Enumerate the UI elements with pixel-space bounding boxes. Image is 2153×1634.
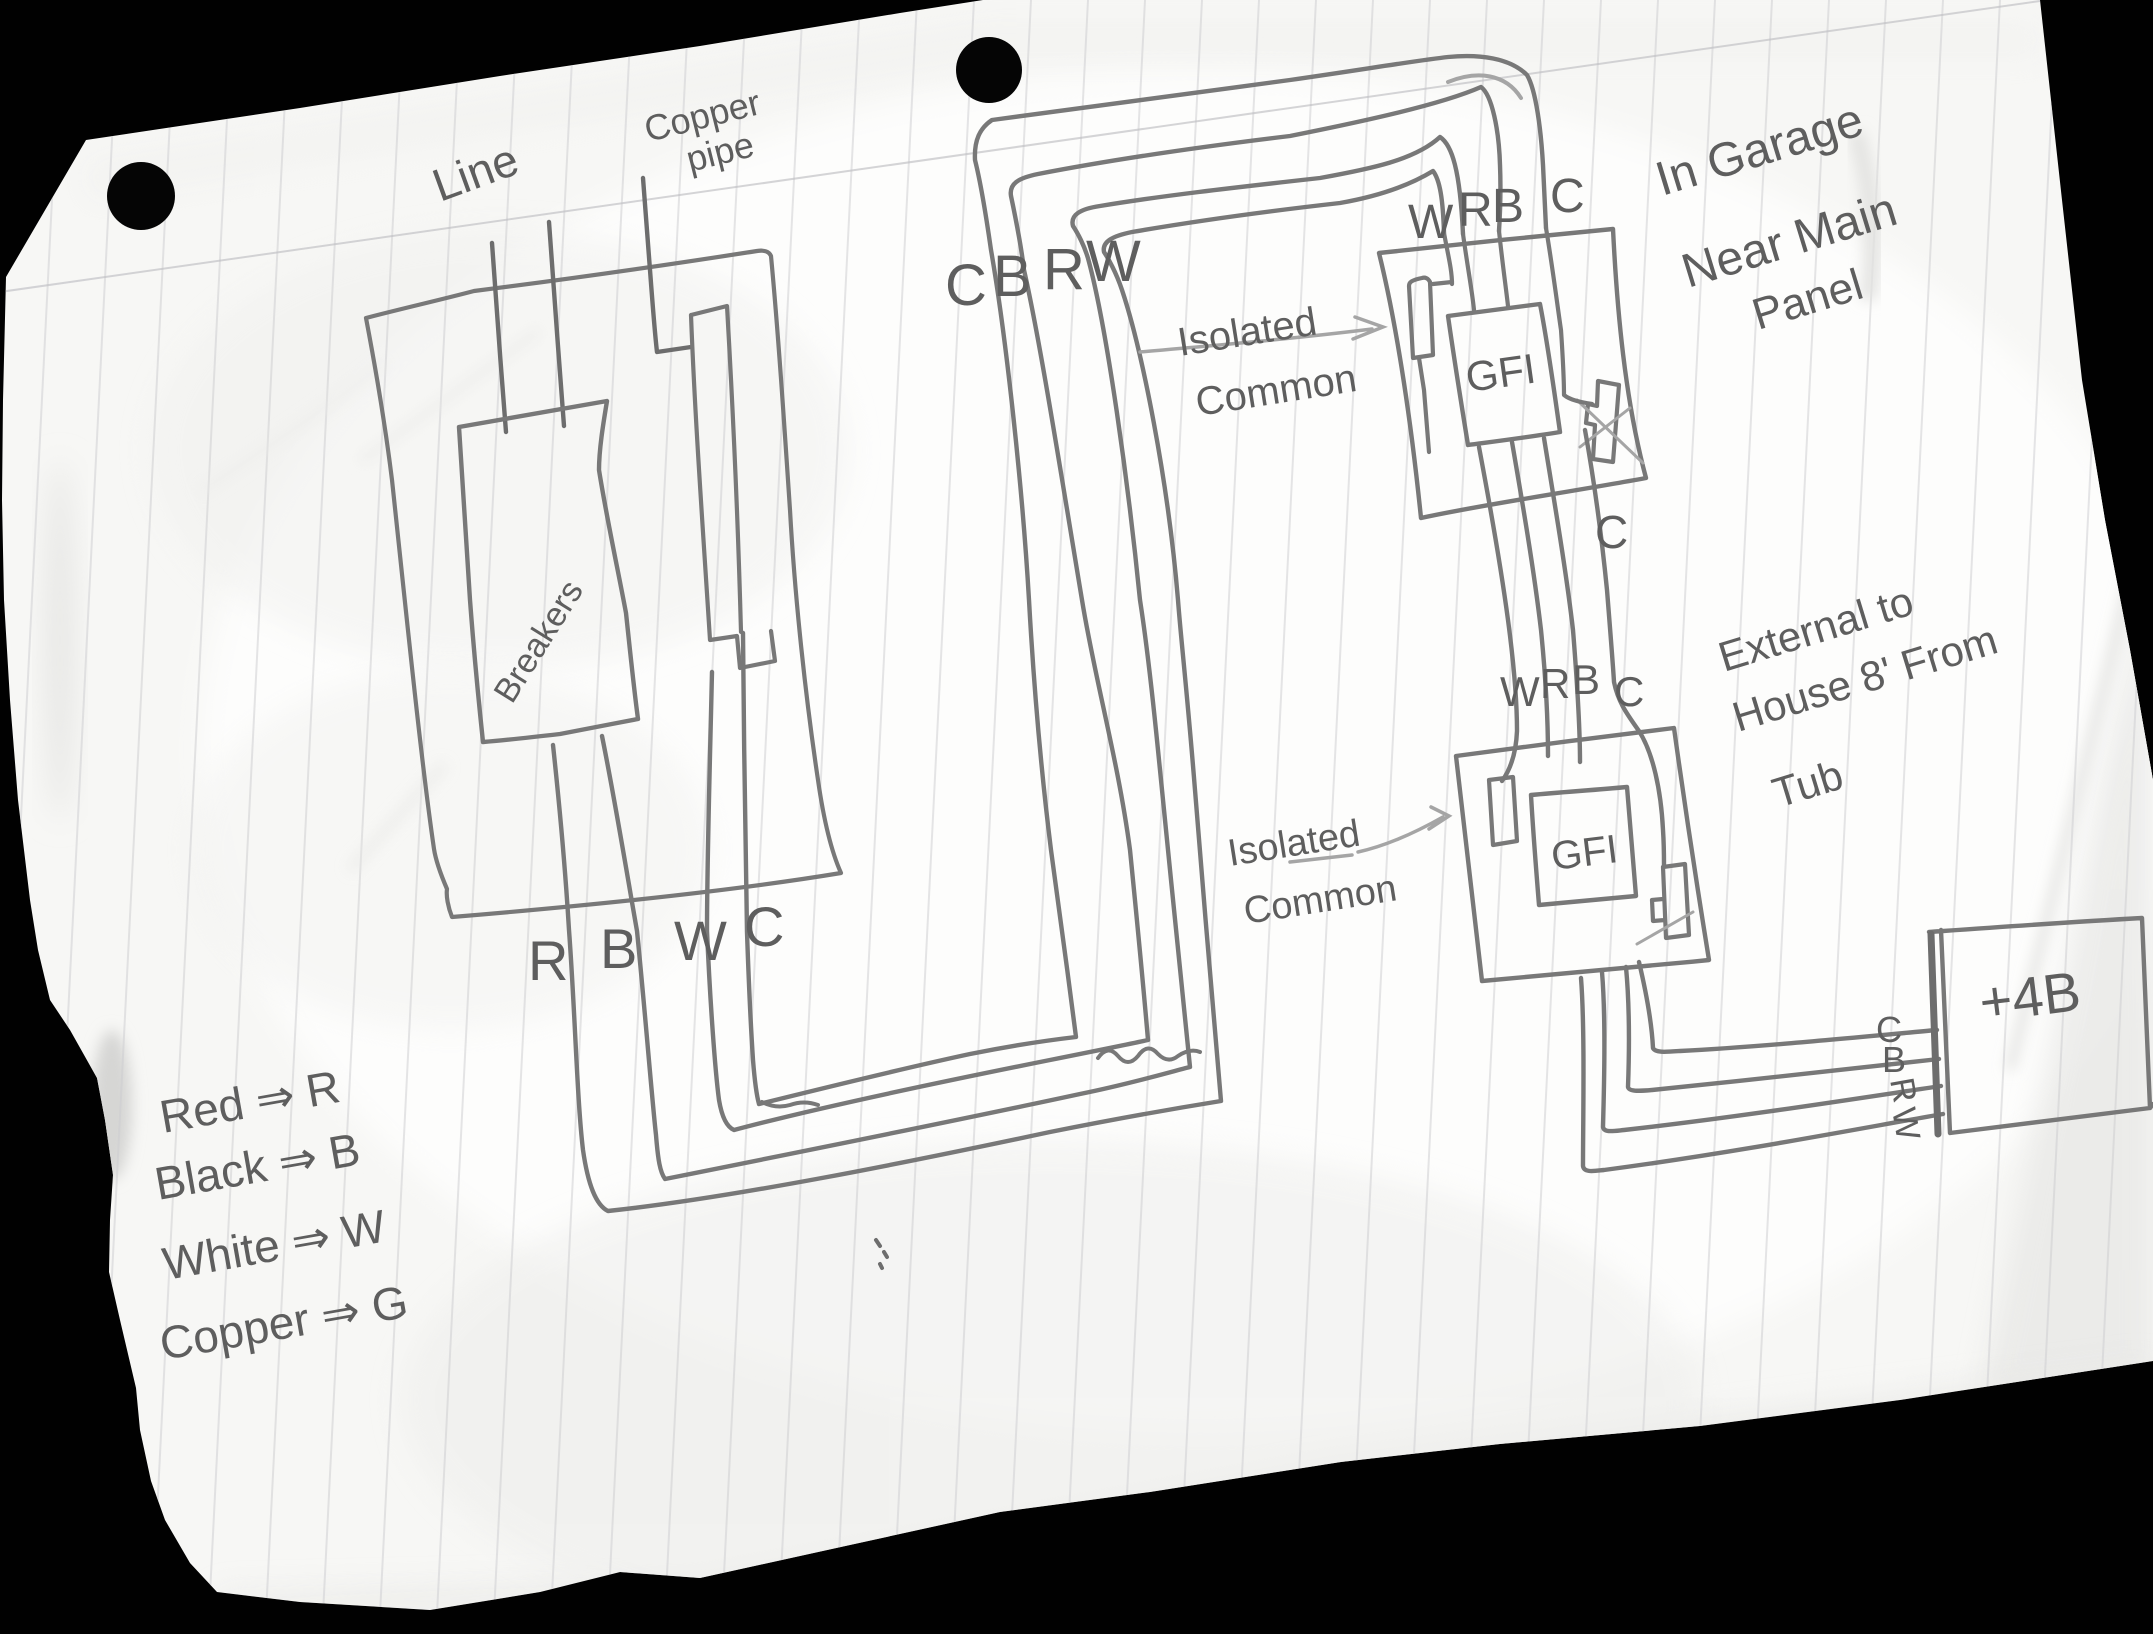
svg-text:B: B <box>1882 1039 1906 1080</box>
svg-text:GFI: GFI <box>1463 345 1539 401</box>
svg-text:B: B <box>1572 656 1600 703</box>
svg-text:W: W <box>1500 668 1540 715</box>
svg-text:C: C <box>1550 170 1585 223</box>
svg-text:W: W <box>1408 196 1454 249</box>
svg-text:B: B <box>600 917 637 980</box>
svg-text:C: C <box>945 253 987 318</box>
svg-text:GFI: GFI <box>1549 827 1621 879</box>
svg-text:B: B <box>1492 180 1524 233</box>
svg-text:R: R <box>1458 184 1493 237</box>
svg-text:W: W <box>1086 229 1141 294</box>
svg-text:C: C <box>1614 668 1644 715</box>
svg-text:+4B: +4B <box>1976 959 2084 1034</box>
svg-text:R: R <box>1540 660 1570 707</box>
svg-text:W: W <box>1884 1105 1927 1143</box>
svg-text:C: C <box>744 895 784 958</box>
svg-text:W: W <box>674 909 727 972</box>
svg-text:C: C <box>1595 506 1628 558</box>
svg-text:R: R <box>528 929 568 992</box>
svg-text:R: R <box>1043 237 1085 302</box>
svg-text:B: B <box>993 244 1032 309</box>
